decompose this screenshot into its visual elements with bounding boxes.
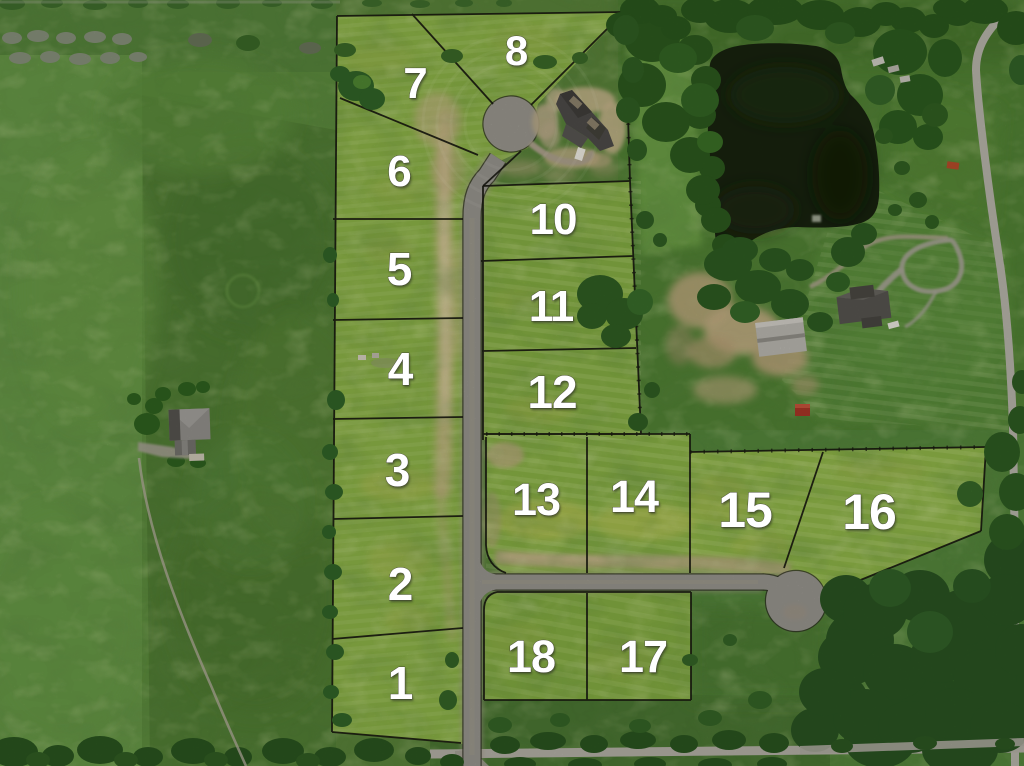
svg-text:11: 11 (529, 282, 574, 331)
svg-text:13: 13 (512, 474, 560, 525)
svg-text:18: 18 (507, 631, 555, 682)
svg-text:16: 16 (842, 484, 896, 540)
svg-text:8: 8 (505, 27, 528, 74)
svg-text:1: 1 (388, 657, 413, 709)
svg-text:5: 5 (387, 243, 412, 295)
svg-text:2: 2 (388, 558, 413, 610)
svg-text:6: 6 (387, 147, 410, 196)
svg-text:17: 17 (619, 631, 667, 682)
svg-text:12: 12 (527, 366, 576, 418)
svg-text:15: 15 (718, 482, 772, 538)
svg-text:7: 7 (403, 59, 426, 108)
svg-text:4: 4 (388, 343, 414, 395)
svg-text:3: 3 (385, 444, 410, 496)
svg-text:14: 14 (610, 471, 659, 522)
svg-text:10: 10 (530, 195, 577, 244)
